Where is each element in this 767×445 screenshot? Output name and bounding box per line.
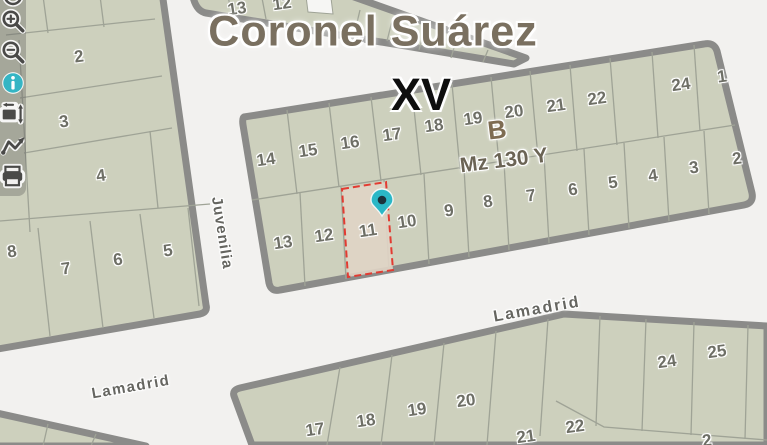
map-canvas[interactable]: 2348765131214151617181920212224113121110… <box>0 0 767 445</box>
parcel-number: 24 <box>656 351 678 373</box>
city-title: Coronel Suárez <box>208 8 537 57</box>
zoom-out-button[interactable] <box>0 39 26 65</box>
parcel-number: 12 <box>313 225 335 247</box>
parcel-number: 11 <box>358 220 379 242</box>
clipped-top-icon[interactable] <box>0 0 26 7</box>
parcel-number: 21 <box>545 95 567 117</box>
parcel-number: 16 <box>339 132 361 154</box>
parcel-number: 22 <box>564 416 586 438</box>
parcel-number: 19 <box>406 399 428 421</box>
print-button[interactable] <box>0 163 26 189</box>
parcel-number: 22 <box>586 88 608 110</box>
info-button[interactable] <box>0 70 26 96</box>
extent-button[interactable] <box>0 101 26 127</box>
block-letter-label: B <box>486 113 508 146</box>
section-label: XV <box>391 69 451 121</box>
parcel-map[interactable] <box>0 0 767 445</box>
parcel-number: 14 <box>255 149 277 171</box>
map-toolbar <box>0 0 26 196</box>
parcel-number: 10 <box>396 211 418 233</box>
parcel-number: 17 <box>381 124 403 146</box>
parcel-number: 20 <box>455 390 477 412</box>
parcel-number: 25 <box>706 341 728 363</box>
parcel-number: 18 <box>355 410 377 432</box>
parcel-number: 15 <box>297 140 319 162</box>
measure-path-button[interactable] <box>0 132 26 158</box>
block-bottom-left <box>0 412 146 445</box>
parcel-number: 17 <box>304 419 326 441</box>
parcel-number: 13 <box>272 232 294 254</box>
zoom-in-button[interactable] <box>0 8 26 34</box>
parcel-number: 21 <box>515 426 537 445</box>
parcel-number: 20 <box>503 101 525 123</box>
parcel-number: 19 <box>462 108 484 130</box>
parcel-number: 24 <box>670 74 692 96</box>
